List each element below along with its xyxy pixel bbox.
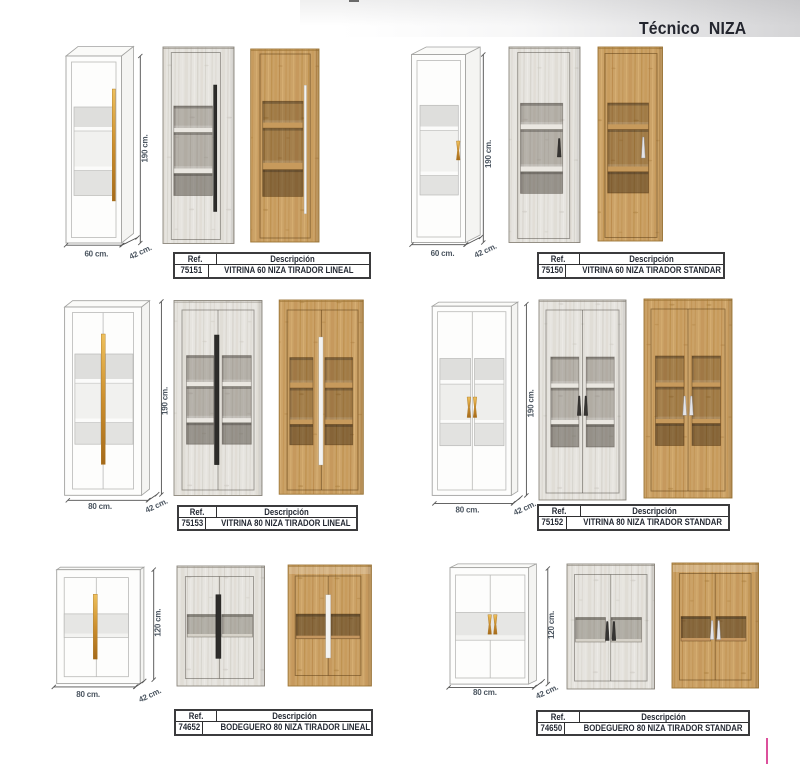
svg-text:80 cm.: 80 cm.: [456, 506, 480, 515]
svg-text:120 cm.: 120 cm.: [547, 611, 556, 639]
svg-text:80 cm.: 80 cm.: [88, 502, 112, 511]
svg-text:42 cm.: 42 cm.: [144, 497, 169, 515]
svg-text:80 cm.: 80 cm.: [76, 690, 100, 699]
svg-text:42 cm.: 42 cm.: [128, 243, 153, 261]
svg-text:190 cm.: 190 cm.: [527, 389, 536, 417]
svg-text:42 cm.: 42 cm.: [137, 686, 162, 704]
svg-text:80 cm.: 80 cm.: [473, 688, 497, 697]
svg-text:60 cm.: 60 cm.: [431, 249, 455, 258]
svg-text:190 cm.: 190 cm.: [160, 387, 169, 415]
svg-text:190 cm.: 190 cm.: [484, 140, 493, 168]
svg-text:42 cm.: 42 cm.: [473, 242, 498, 260]
svg-text:190 cm.: 190 cm.: [140, 135, 149, 163]
svg-text:60 cm.: 60 cm.: [84, 249, 108, 258]
svg-text:120 cm.: 120 cm.: [154, 609, 163, 637]
